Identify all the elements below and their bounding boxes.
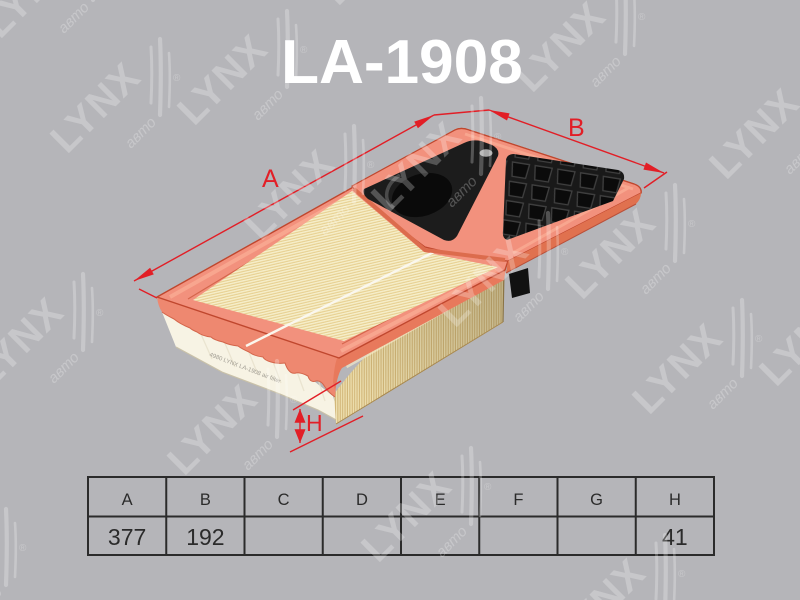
svg-text:A: A: [122, 491, 133, 509]
svg-text:G: G: [590, 491, 603, 509]
svg-text:D: D: [356, 491, 368, 509]
svg-text:H: H: [306, 410, 323, 436]
svg-text:LA-1908: LA-1908: [281, 28, 523, 97]
svg-text:H: H: [669, 491, 681, 509]
svg-text:B: B: [200, 491, 211, 509]
svg-text:F: F: [513, 491, 523, 509]
svg-text:C: C: [278, 491, 290, 509]
svg-text:377: 377: [108, 524, 146, 550]
svg-text:B: B: [568, 114, 585, 142]
svg-text:192: 192: [186, 524, 224, 550]
